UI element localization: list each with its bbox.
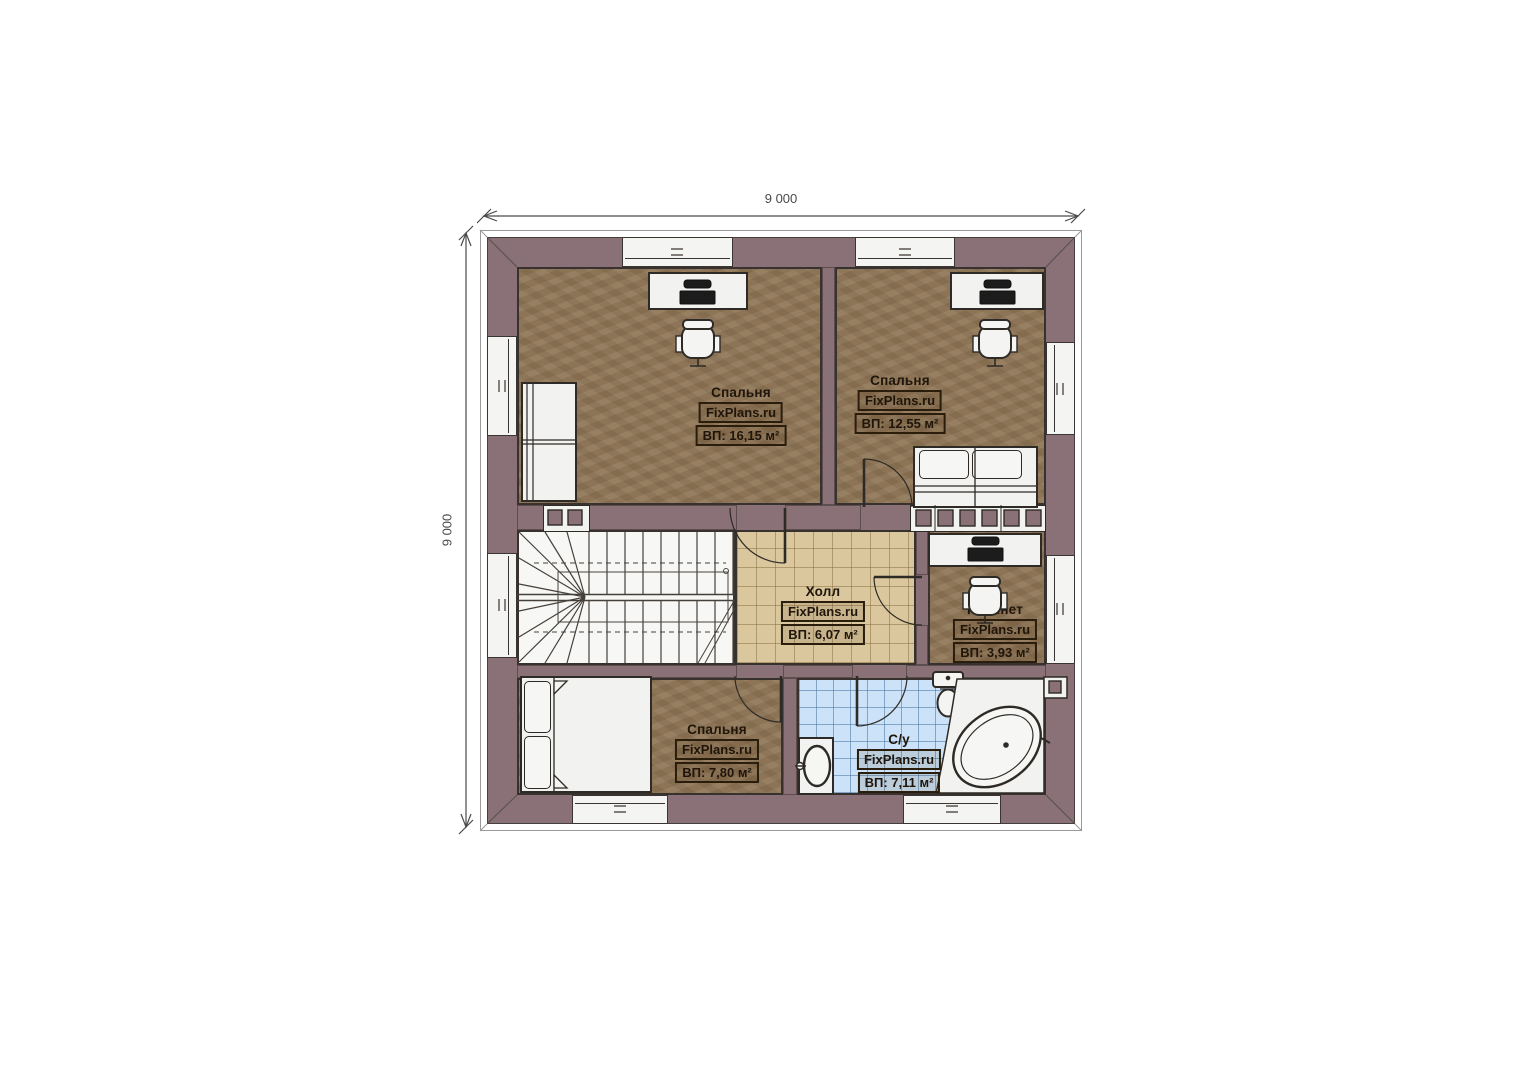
wall-mid-center <box>785 505 861 530</box>
wall-bedroom-bathroom <box>783 678 797 795</box>
window-bottom-2 <box>903 795 1001 824</box>
wardrobe <box>521 382 577 502</box>
pillow <box>524 681 551 733</box>
label-bedroom-top-right: Спальня FixPlans.ru ВП: 12,55 м² <box>855 373 946 434</box>
desk-bedroom-top-left <box>648 272 748 310</box>
desk-office <box>928 533 1042 567</box>
shelf-unit <box>543 505 590 532</box>
staircase-area <box>517 530 735 665</box>
area-box: ВП: 7,80 м² <box>675 762 759 783</box>
label-bedroom-bottom-left: Спальня FixPlans.ru ВП: 7,80 м² <box>675 722 759 783</box>
wall-between-bedrooms <box>822 267 835 505</box>
label-bathroom: С/у FixPlans.ru ВП: 7,11 м² <box>857 732 941 793</box>
window-top-2 <box>855 237 955 267</box>
sink-counter <box>798 737 834 795</box>
label-hall: Холл FixPlans.ru ВП: 6,07 м² <box>781 584 865 645</box>
wall-lower-right <box>906 665 1046 678</box>
watermark-box: FixPlans.ru <box>858 390 942 411</box>
watermark-box: FixPlans.ru <box>699 402 783 423</box>
window-right-2 <box>1046 555 1075 664</box>
pillow <box>524 736 551 789</box>
label-bedroom-top-left: Спальня FixPlans.ru ВП: 16,15 м² <box>696 385 787 446</box>
watermark-box: FixPlans.ru <box>857 749 941 770</box>
label-office: Кабинет FixPlans.ru ВП: 3,93 м² <box>953 602 1037 663</box>
floor-plan-canvas: 9 000 9 000 <box>0 0 1528 1080</box>
area-box: ВП: 6,07 м² <box>781 624 865 645</box>
dimension-top-label: 9 000 <box>765 191 798 206</box>
area-box: ВП: 16,15 м² <box>696 425 787 446</box>
wall-office-upper <box>916 530 928 575</box>
dimension-left-label: 9 000 <box>440 514 455 547</box>
wall-office-lower <box>916 625 928 665</box>
room-name: Спальня <box>711 385 771 400</box>
watermark-box: FixPlans.ru <box>781 601 865 622</box>
area-box: ВП: 3,93 м² <box>953 642 1037 663</box>
room-name: Кабинет <box>967 602 1023 617</box>
area-box: ВП: 12,55 м² <box>855 413 946 434</box>
window-bottom-1 <box>572 795 668 824</box>
window-left-2 <box>487 553 517 658</box>
window-right-1 <box>1046 342 1075 435</box>
room-name: Спальня <box>687 722 747 737</box>
room-name: Холл <box>806 584 841 599</box>
wall-lower-center <box>783 665 853 678</box>
closet-strip <box>910 505 1046 532</box>
watermark-box: FixPlans.ru <box>675 739 759 760</box>
watermark-box: FixPlans.ru <box>953 619 1037 640</box>
room-name: Спальня <box>870 373 930 388</box>
pillow <box>919 450 969 479</box>
desk-bedroom-top-right <box>950 272 1044 310</box>
area-box: ВП: 7,11 м² <box>858 772 941 793</box>
pillow <box>972 450 1022 479</box>
window-left-1 <box>487 336 517 436</box>
room-name: С/у <box>888 732 910 747</box>
window-top-1 <box>622 237 733 267</box>
